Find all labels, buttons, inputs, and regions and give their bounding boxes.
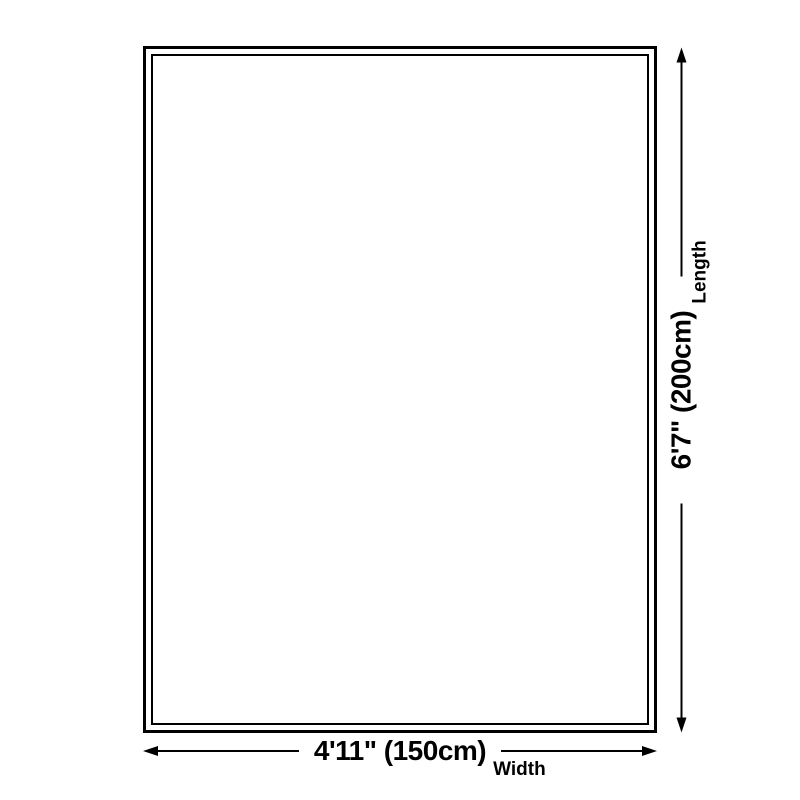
length-unit-label: Length (691, 240, 710, 303)
length-dimension-line-upper (681, 62, 683, 276)
product-outline-inner-border (151, 54, 649, 725)
length-dimension: 6'7" (200cm) Length (660, 48, 704, 733)
arrow-right-icon (642, 746, 657, 756)
length-value: 6'7" (200cm) (666, 311, 697, 470)
size-diagram: 6'7" (200cm) Length 4'11" (150cm) Width (0, 0, 800, 800)
arrow-down-icon (677, 718, 687, 733)
width-dimension-line-left (158, 750, 299, 752)
length-dimension-line-lower (681, 503, 683, 717)
width-dimension-label: 4'11" (150cm) Width (314, 737, 486, 765)
width-dimension-line-right (501, 750, 642, 752)
arrow-left-icon (143, 746, 158, 756)
product-outline (143, 46, 657, 733)
width-unit-label: Width (493, 760, 546, 779)
width-value: 4'11" (150cm) (314, 735, 486, 766)
length-dimension-label: 6'7" (200cm) Length (668, 311, 696, 470)
width-dimension: 4'11" (150cm) Width (143, 729, 657, 773)
arrow-up-icon (677, 47, 687, 62)
